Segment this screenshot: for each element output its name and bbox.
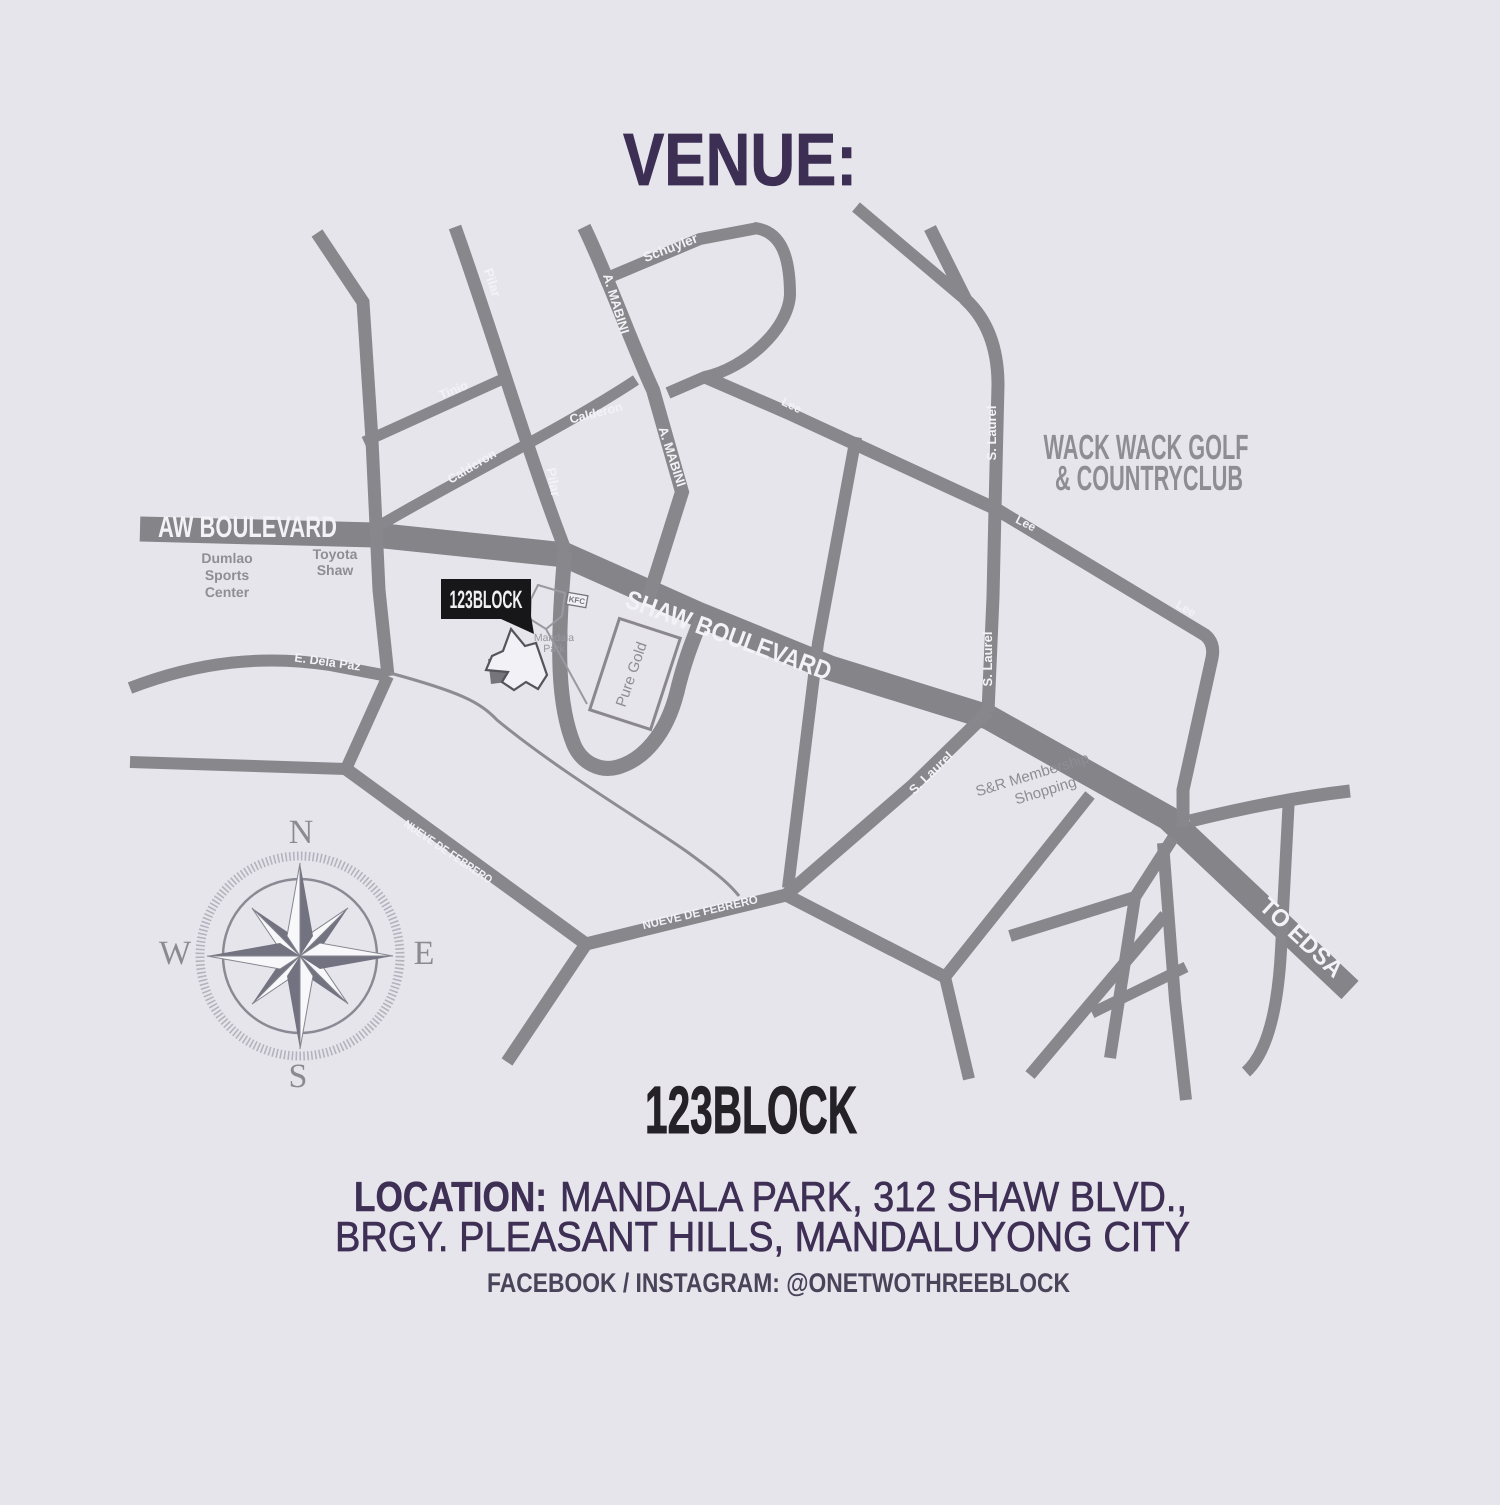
svg-text:Schuyler: Schuyler [641,230,700,265]
svg-text:N: N [289,814,314,851]
svg-text:E: E [414,935,435,972]
svg-text:Shaw: Shaw [317,562,354,578]
svg-text:SHAW BOULEVARD: SHAW BOULEVARD [622,584,836,686]
svg-text:Pure Gold: Pure Gold [613,640,651,709]
svg-text:AW BOULEVARD: AW BOULEVARD [158,511,337,544]
svg-text:S. Laurel: S. Laurel [980,632,995,687]
svg-text:123BLOCK: 123BLOCK [645,1073,857,1148]
svg-text:TO EDSA: TO EDSA [1254,893,1348,984]
svg-text:Toyota: Toyota [313,546,358,562]
svg-text:NUEVE DE FEBRERO: NUEVE DE FEBRERO [401,818,494,886]
svg-text:Dumlao: Dumlao [201,550,252,566]
svg-text:A. MABINI: A. MABINI [656,425,689,489]
svg-text:Sports: Sports [205,567,250,583]
svg-text:Center: Center [205,584,250,600]
svg-text:BRGY. PLEASANT HILLS, MANDALUY: BRGY. PLEASANT HILLS, MANDALUYONG CITY [335,1213,1190,1260]
svg-text:Park: Park [543,643,565,655]
svg-text:VENUE:: VENUE: [623,118,857,201]
svg-text:S. Laurel: S. Laurel [906,748,956,797]
svg-text:S: S [289,1058,308,1095]
svg-text:W: W [159,935,192,972]
svg-text:123BLOCK: 123BLOCK [450,586,523,614]
svg-text:NUEVE DE FEBRERO: NUEVE DE FEBRERO [641,894,759,932]
svg-text:& COUNTRYCLUB: & COUNTRYCLUB [1055,459,1243,498]
svg-text:S. Laurel: S. Laurel [984,406,999,461]
svg-text:A. MABINI: A. MABINI [600,272,632,336]
svg-text:FACEBOOK / INSTAGRAM: @ONETWOT: FACEBOOK / INSTAGRAM: @ONETWOTHREEBLOCK [487,1268,1070,1298]
